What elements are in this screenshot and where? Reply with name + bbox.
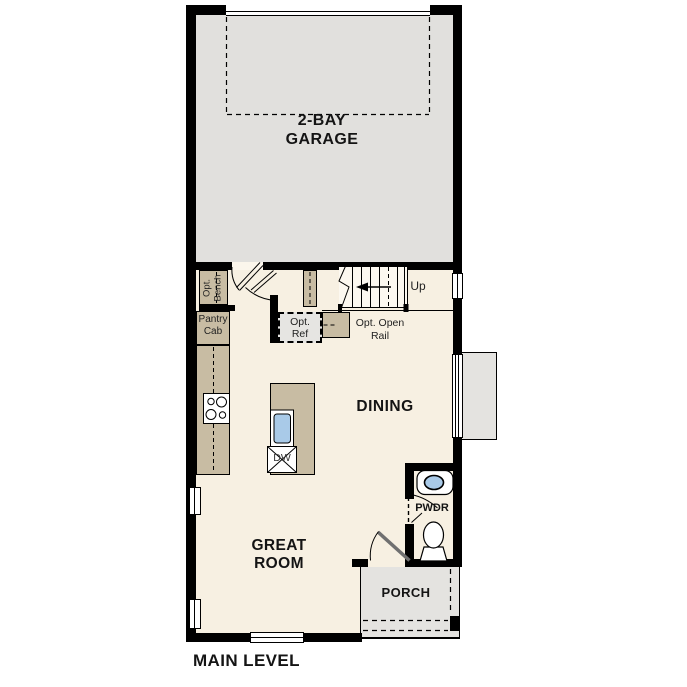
- wall-garage-bottom: [186, 262, 462, 270]
- opt-open-rail-line1: Opt. Open: [350, 317, 410, 330]
- bay-window-box: [460, 352, 497, 440]
- pantry-cab-label: Pantry Cab: [196, 314, 230, 337]
- opt-bench-line1: Opt.: [203, 268, 214, 308]
- porch-corner-stub: [450, 616, 460, 631]
- kitchen-wall-stub: [270, 295, 278, 343]
- wall-top-right-stub: [430, 5, 462, 15]
- mud-hall-wall-strip: [303, 270, 317, 307]
- pantry-cab-line1: Pantry: [196, 314, 230, 326]
- dining-room-label: DINING: [340, 398, 430, 415]
- porch-floor: [360, 567, 460, 639]
- opt-bench-label: Opt. Bench: [203, 268, 224, 308]
- dishwasher-label: DW: [267, 452, 297, 464]
- kitchen-counter: [196, 345, 230, 475]
- garage-label-line1: 2-BAY: [247, 112, 397, 131]
- window-right-bay: [452, 354, 463, 438]
- opt-bench-line2: Bench: [213, 268, 224, 308]
- garage-room-label: 2-BAY GARAGE: [247, 112, 397, 149]
- garage-entry-opening: [232, 262, 263, 270]
- opt-open-rail-label: Opt. Open Rail: [350, 317, 410, 343]
- window-right-stair: [452, 273, 463, 299]
- window-left-upper: [189, 487, 201, 515]
- opt-ref-box: Opt. Ref: [278, 312, 322, 343]
- great-room-label-line1: GREAT: [229, 537, 329, 555]
- pantry-cab-line2: Cab: [196, 326, 230, 338]
- garage-label-line2: GARAGE: [247, 131, 397, 150]
- rail-base-cabinet: [322, 312, 350, 338]
- wall-left: [186, 5, 196, 642]
- window-bottom: [250, 632, 304, 643]
- window-left-lower: [189, 599, 201, 629]
- opt-open-rail-line2: Rail: [350, 330, 410, 343]
- floor-plan: Opt. Ref: [0, 0, 687, 687]
- stair-hall-line: [322, 310, 453, 311]
- pwdr-wall-left-upper: [405, 463, 414, 499]
- wall-top-left-stub: [186, 5, 226, 15]
- garage-door-line: [226, 11, 430, 16]
- stairs-up-label: Up: [406, 280, 430, 294]
- opt-ref-label-1: Opt.: [290, 316, 310, 328]
- great-room-label-line2: ROOM: [229, 555, 329, 573]
- opt-ref-label-2: Ref: [292, 328, 308, 340]
- porch-label: PORCH: [366, 586, 446, 601]
- great-room-label: GREAT ROOM: [229, 537, 329, 572]
- pwdr-label: PWDR: [409, 502, 455, 514]
- front-door-opening: [368, 559, 405, 567]
- main-level-title: MAIN LEVEL: [193, 651, 373, 670]
